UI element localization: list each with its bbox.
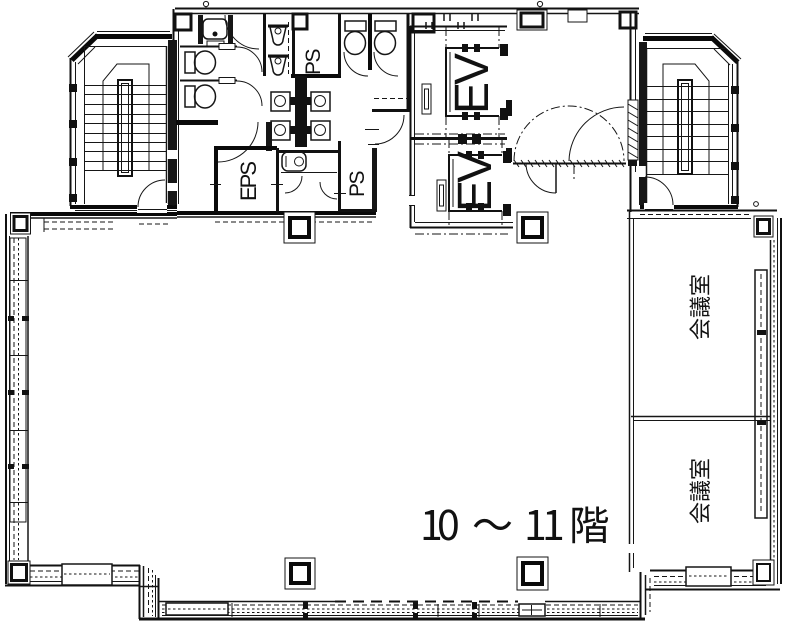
svg-text:EV: EV (449, 151, 502, 212)
svg-text:EPS: EPS (236, 162, 261, 201)
svg-text:EV: EV (446, 53, 499, 114)
svg-text:PS: PS (302, 48, 325, 75)
svg-text:PS: PS (346, 170, 369, 197)
